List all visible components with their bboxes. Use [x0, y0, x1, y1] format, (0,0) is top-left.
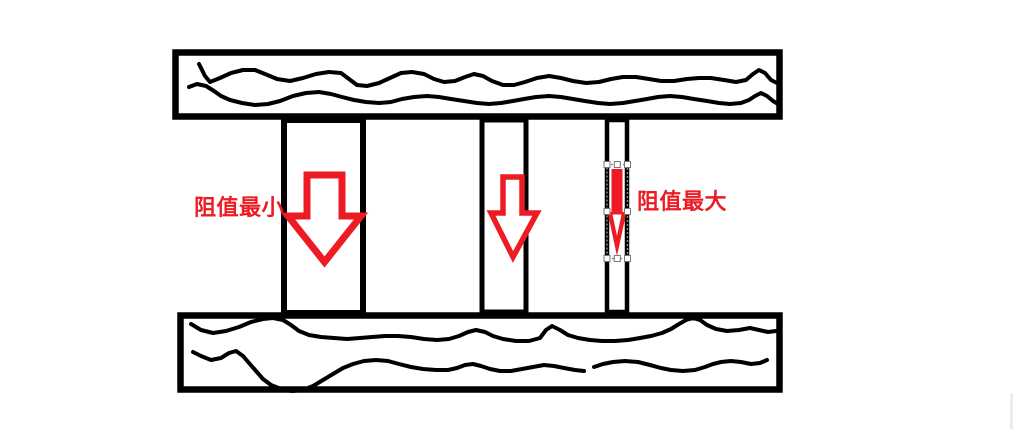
paint-canvas[interactable]: 阻值最小 阻值最大: [0, 0, 1013, 429]
selection-handle-bottom-right[interactable]: [625, 256, 631, 262]
selection-handle-bottom-left[interactable]: [604, 256, 610, 262]
top-plate: [176, 53, 780, 117]
label-max-resistance: 阻值最大: [637, 192, 727, 214]
thin-arrow-stem[interactable]: [612, 169, 623, 213]
selection-handle-top-left[interactable]: [604, 162, 610, 168]
selection-handle-top-right[interactable]: [625, 162, 631, 168]
selection-handle-mid-right[interactable]: [625, 209, 631, 215]
label-min-resistance: 阻值最小: [194, 198, 284, 220]
selection-handle-bottom-center[interactable]: [614, 256, 620, 262]
bottom-plate-outline: [181, 316, 780, 390]
bottom-plate: [181, 316, 780, 392]
selection-handle-mid-left[interactable]: [604, 209, 610, 215]
selection-handle-top-center[interactable]: [614, 162, 620, 168]
top-plate-outline: [176, 53, 780, 117]
drawing-layer: [0, 0, 1013, 429]
